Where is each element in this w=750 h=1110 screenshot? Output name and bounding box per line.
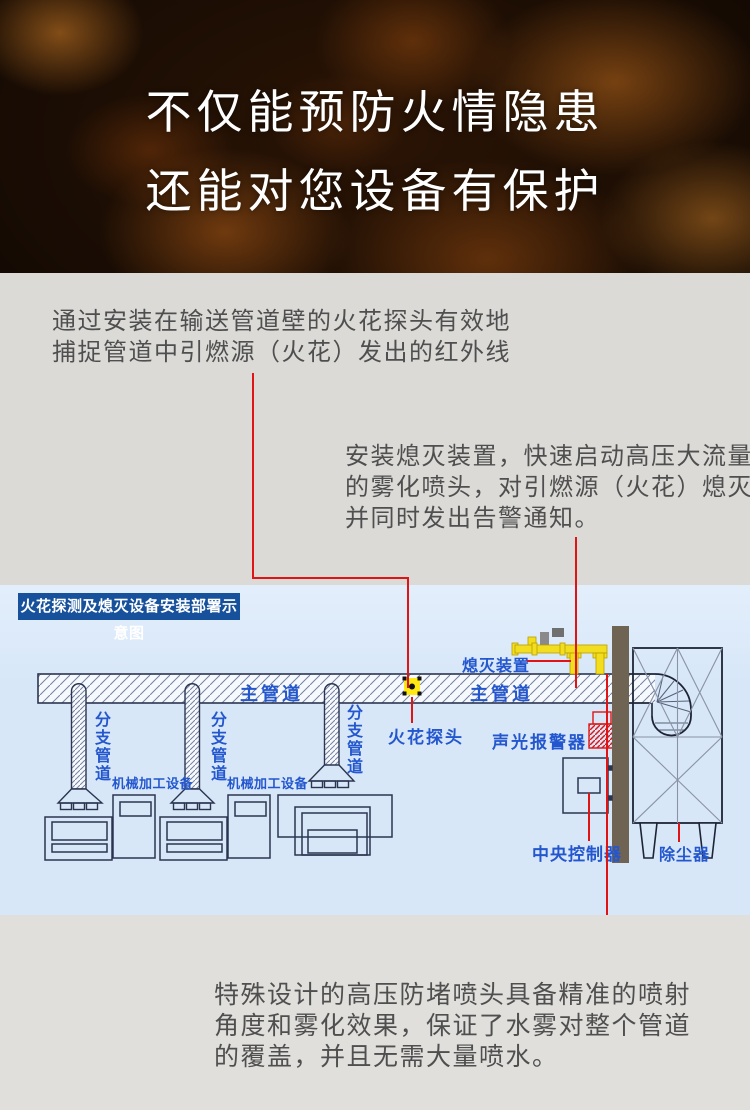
connector-collector-label [678, 823, 680, 842]
paragraph-nozzle-line2: 角度和雾化效果，保证了水雾对整个管道 [214, 1011, 691, 1042]
paragraph-detection-line1: 通过安装在输送管道壁的火花探头有效地 [52, 306, 511, 337]
fire-banner: 不仅能预防火情隐患 还能对您设备有保护 [0, 0, 750, 273]
connector-controller-label [588, 793, 590, 841]
paragraph-nozzle-line3: 的覆盖，并且无需大量喷水。 [214, 1042, 691, 1073]
label-dust-collector: 除尘器 [659, 841, 710, 865]
paragraph-nozzle: 特殊设计的高压防堵喷头具备精准的喷射 角度和雾化效果，保证了水雾对整个管道 的覆… [214, 980, 691, 1073]
label-alarm: 声光报警器 [492, 728, 587, 753]
alarm-icon [589, 712, 613, 748]
promo-page: 不仅能预防火情隐患 还能对您设备有保护 通过安装在输送管道壁的火花探头有效地 捕… [0, 0, 750, 1110]
connector-detection-vertical [252, 373, 254, 579]
diagram-title-badge: 火花探测及熄灭设备安装部署示意图 [18, 593, 240, 620]
paragraph-extinguish-line3: 并同时发出告警通知。 [345, 503, 750, 534]
headline-line-1: 不仅能预防火情隐患 [0, 76, 750, 142]
label-branch-pipe-3: 分支管道 [340, 704, 364, 776]
label-extinguisher: 熄灭装置 [462, 652, 530, 676]
label-spark-detector: 火花探头 [388, 723, 464, 748]
paragraph-nozzle-line1: 特殊设计的高压防堵喷头具备精准的喷射 [214, 980, 691, 1011]
machine-group-1 [45, 795, 155, 860]
spark-detector-icon [403, 677, 422, 696]
machine-group-2 [160, 795, 270, 860]
headline-line-2: 还能对您设备有保护 [0, 155, 750, 221]
label-machine-1: 机械加工设备 [112, 773, 193, 792]
label-main-pipe-left: 主管道 [240, 680, 303, 706]
connector-extinguisher-label [527, 660, 571, 662]
paragraph-extinguish-line1: 安装熄灭装置，快速启动高压大流量 [345, 441, 750, 472]
label-branch-pipe-1: 分支管道 [88, 711, 112, 783]
machine-group-3 [278, 795, 392, 855]
connector-detector-to-label [411, 697, 413, 723]
paragraph-detection: 通过安装在输送管道壁的火花探头有效地 捕捉管道中引燃源（火花）发出的红外线 [52, 306, 511, 368]
label-machine-2: 机械加工设备 [227, 773, 308, 792]
paragraph-extinguish-line2: 的雾化喷头，对引燃源（火花）熄灭 [345, 472, 750, 503]
wall [612, 626, 629, 863]
label-branch-pipe-2: 分支管道 [204, 711, 228, 783]
connector-detection-horizontal [252, 577, 409, 579]
paragraph-detection-line2: 捕捉管道中引燃源（火花）发出的红外线 [52, 337, 511, 368]
label-main-pipe-right: 主管道 [470, 680, 533, 706]
paragraph-extinguish: 安装熄灭装置，快速启动高压大流量 的雾化喷头，对引燃源（火花）熄灭 并同时发出告… [345, 441, 750, 534]
connector-detection-to-detector [407, 577, 409, 688]
label-controller: 中央控制器 [532, 840, 622, 865]
connector-extinguish-to-pipe [575, 537, 577, 688]
